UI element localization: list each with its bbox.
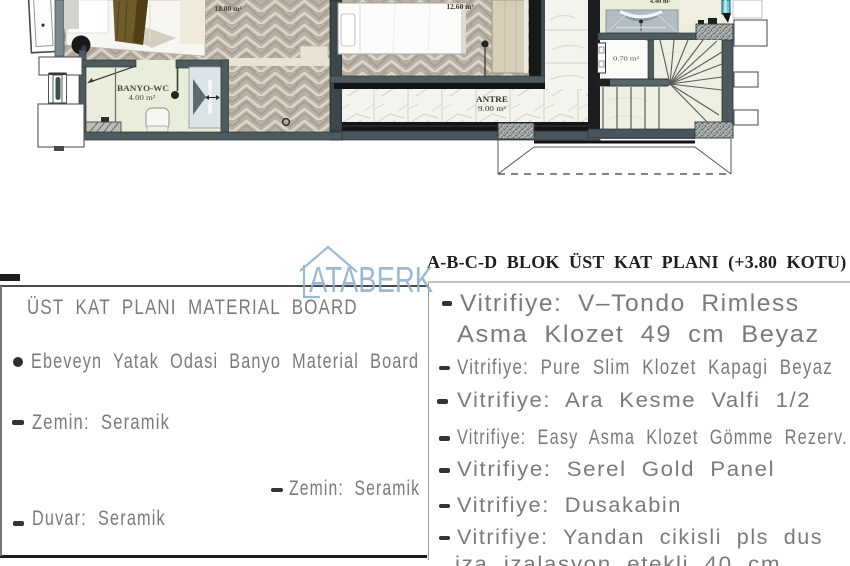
svg-text:4.00 m²: 4.00 m² [129,94,156,102]
svg-text:4.40 m²: 4.40 m² [650,0,670,5]
svg-text:9.00 m²: 9.00 m² [478,105,506,113]
svg-text:ANTRE: ANTRE [476,95,508,104]
svg-text:0.70 m²: 0.70 m² [613,57,639,63]
svg-text:ATABERK: ATABERK [309,259,433,299]
svg-text:18.00 m²: 18.00 m² [214,4,242,13]
svg-text:12.60 m²: 12.60 m² [446,2,474,11]
svg-text:BANYO-WC: BANYO-WC [117,84,169,93]
